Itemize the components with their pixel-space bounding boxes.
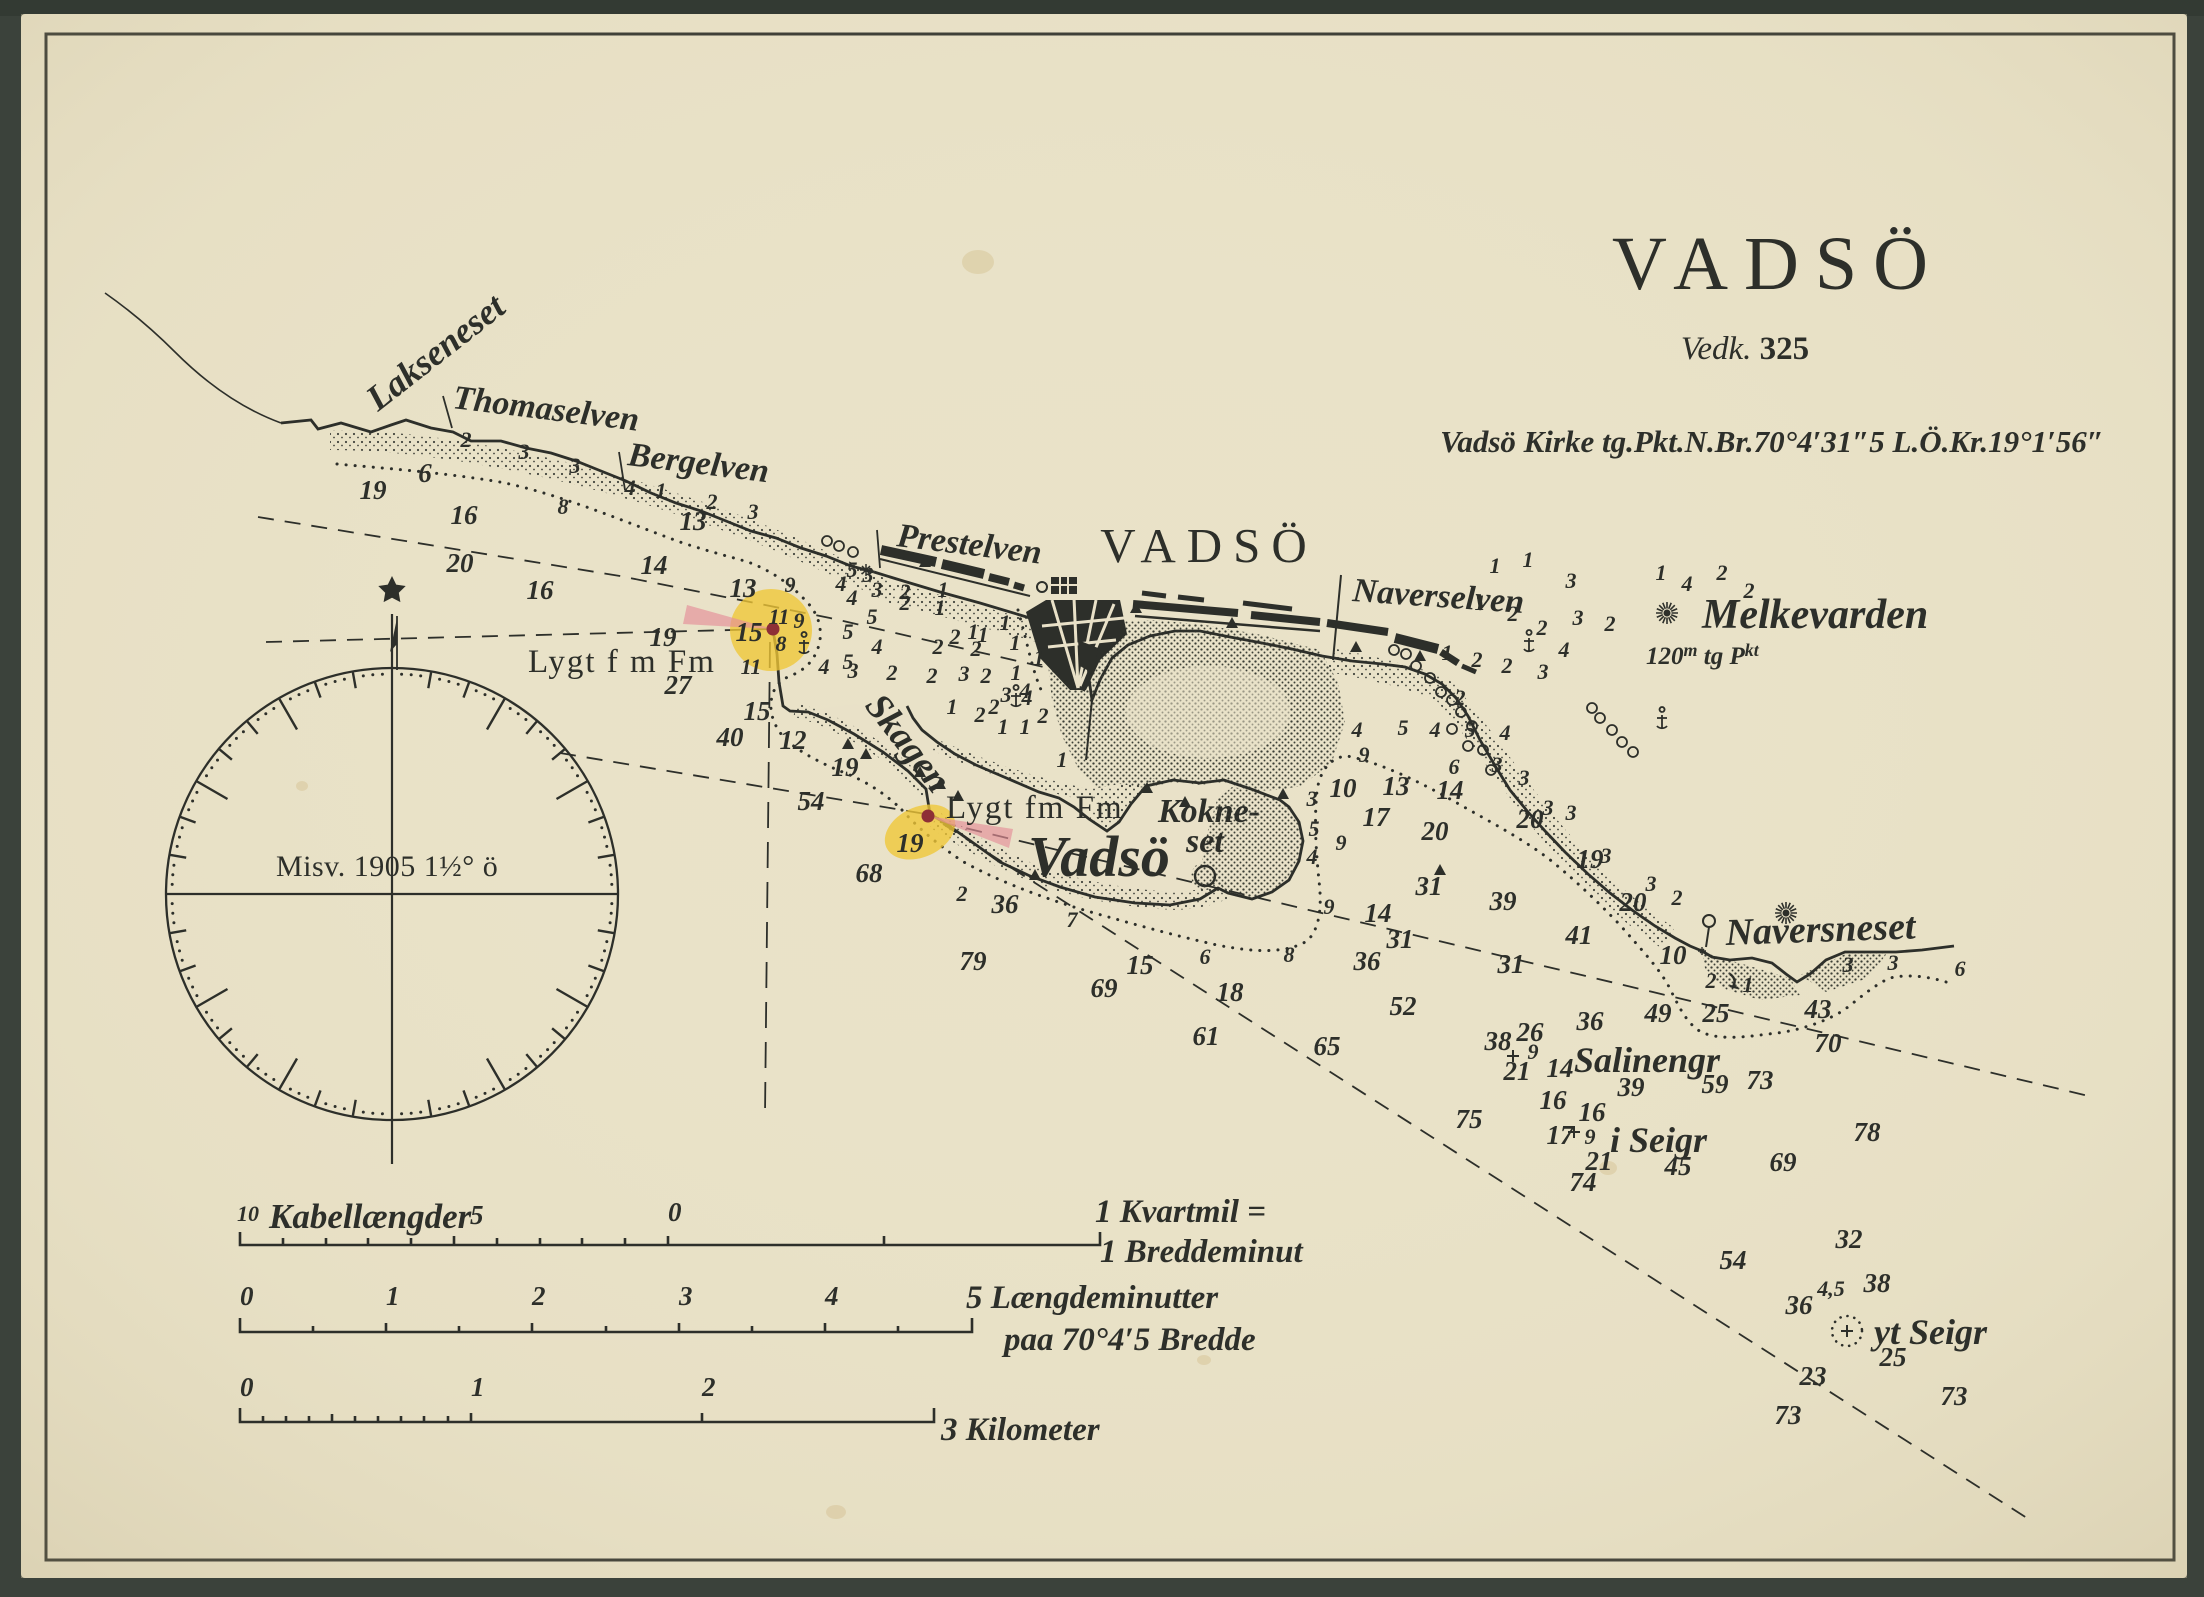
- svg-text:2: 2: [956, 881, 968, 906]
- svg-text:1 Breddeminut: 1 Breddeminut: [1100, 1234, 1303, 1270]
- svg-text:19: 19: [897, 828, 925, 858]
- svg-text:5: 5: [847, 557, 858, 582]
- svg-text:8: 8: [558, 494, 569, 519]
- svg-text:9: 9: [1324, 894, 1335, 919]
- svg-text:36: 36: [1785, 1290, 1814, 1320]
- svg-text:9: 9: [785, 572, 796, 597]
- svg-text:1: 1: [1656, 560, 1667, 585]
- svg-text:20: 20: [1619, 887, 1648, 917]
- svg-text:70: 70: [1815, 1028, 1843, 1058]
- svg-text:10: 10: [1660, 940, 1688, 970]
- svg-text:1: 1: [1034, 645, 1045, 670]
- svg-text:2: 2: [531, 1281, 546, 1311]
- svg-text:4: 4: [818, 654, 830, 679]
- svg-text:5: 5: [1398, 715, 1409, 740]
- svg-text:1: 1: [1010, 630, 1021, 655]
- svg-text:14: 14: [641, 550, 668, 580]
- svg-text:1: 1: [998, 714, 1009, 739]
- svg-text:0: 0: [240, 1281, 254, 1311]
- svg-text:2: 2: [899, 579, 911, 604]
- svg-text:2: 2: [980, 663, 992, 688]
- svg-text:15: 15: [736, 617, 763, 647]
- svg-text:3: 3: [1537, 659, 1549, 684]
- svg-text:13: 13: [680, 506, 707, 536]
- svg-text:4,5: 4,5: [1816, 1276, 1845, 1301]
- svg-text:4: 4: [1681, 571, 1693, 596]
- svg-text:8: 8: [1284, 942, 1295, 967]
- svg-text:36: 36: [1576, 1006, 1605, 1036]
- svg-text:4: 4: [871, 634, 883, 659]
- svg-text:4: 4: [1429, 717, 1441, 742]
- svg-text:3: 3: [1518, 765, 1530, 790]
- svg-text:1: 1: [947, 694, 958, 719]
- svg-text:2: 2: [1454, 685, 1466, 710]
- svg-text:3: 3: [1645, 871, 1657, 896]
- svg-text:4: 4: [846, 585, 858, 610]
- svg-text:Misv. 1905 1½° ö: Misv. 1905 1½° ö: [276, 850, 498, 883]
- svg-text:4: 4: [1499, 720, 1511, 745]
- svg-text:69: 69: [1091, 973, 1119, 1003]
- svg-text:4: 4: [1558, 637, 1570, 662]
- svg-text:2: 2: [1604, 611, 1616, 636]
- svg-text:3: 3: [1306, 786, 1318, 811]
- svg-text:1: 1: [1490, 553, 1501, 578]
- svg-text:14: 14: [1547, 1053, 1574, 1083]
- svg-text:1: 1: [1523, 547, 1534, 572]
- svg-text:52: 52: [1390, 991, 1417, 1021]
- svg-text:2: 2: [1716, 560, 1728, 585]
- svg-text:65: 65: [1314, 1031, 1341, 1061]
- svg-text:73: 73: [1941, 1381, 1968, 1411]
- svg-text:73: 73: [1747, 1065, 1774, 1095]
- svg-text:1: 1: [1057, 747, 1068, 772]
- svg-text:9: 9: [1336, 830, 1347, 855]
- svg-text:73: 73: [1775, 1400, 1802, 1430]
- svg-text:38: 38: [1484, 1026, 1513, 1056]
- svg-text:4: 4: [1351, 717, 1363, 742]
- svg-text:3: 3: [1600, 843, 1612, 868]
- svg-text:68: 68: [856, 858, 884, 888]
- svg-text:5: 5: [867, 604, 878, 629]
- svg-text:i Seigr: i Seigr: [1610, 1120, 1708, 1160]
- svg-text:5: 5: [1465, 717, 1476, 742]
- svg-text:1: 1: [935, 595, 946, 620]
- svg-text:11: 11: [769, 604, 790, 629]
- svg-text:VADSÖ: VADSÖ: [1100, 518, 1317, 573]
- svg-text:15: 15: [744, 696, 771, 726]
- svg-text:2: 2: [926, 663, 938, 688]
- svg-text:1: 1: [656, 478, 667, 503]
- svg-text:4: 4: [835, 571, 847, 596]
- svg-text:13: 13: [730, 573, 757, 603]
- svg-text:3: 3: [862, 562, 874, 587]
- svg-text:3: 3: [569, 453, 581, 478]
- svg-text:39: 39: [1489, 886, 1518, 916]
- svg-text:14: 14: [1437, 775, 1464, 805]
- svg-text:1 Kvartmil =: 1 Kvartmil =: [1095, 1194, 1266, 1230]
- svg-text:3: 3: [678, 1281, 693, 1311]
- svg-text:19: 19: [360, 475, 388, 505]
- svg-text:2: 2: [1536, 615, 1548, 640]
- svg-text:1: 1: [1475, 590, 1486, 615]
- svg-text:VADSÖ: VADSÖ: [1612, 222, 1944, 306]
- svg-text:1: 1: [1442, 640, 1453, 665]
- svg-text:0: 0: [668, 1197, 682, 1227]
- svg-text:10: 10: [237, 1201, 259, 1226]
- svg-text:74: 74: [1570, 1167, 1597, 1197]
- svg-text:59: 59: [1702, 1069, 1730, 1099]
- svg-text:79: 79: [960, 946, 988, 976]
- svg-text:3: 3: [1491, 752, 1503, 777]
- svg-text:2: 2: [932, 634, 944, 659]
- svg-text:32: 32: [1835, 1224, 1863, 1254]
- svg-text:61: 61: [1193, 1021, 1220, 1051]
- svg-text:3: 3: [747, 499, 759, 524]
- svg-text:16: 16: [527, 575, 555, 605]
- svg-text:2: 2: [1471, 647, 1483, 672]
- svg-text:2: 2: [1671, 885, 1683, 910]
- svg-text:54: 54: [798, 786, 825, 816]
- svg-text:31: 31: [1497, 949, 1525, 979]
- svg-text:49: 49: [1644, 998, 1673, 1028]
- svg-text:0: 0: [240, 1372, 254, 1402]
- svg-text:1: 1: [1020, 714, 1031, 739]
- svg-text:20: 20: [1516, 804, 1545, 834]
- svg-text:3: 3: [958, 661, 970, 686]
- svg-text:2: 2: [1507, 601, 1519, 626]
- svg-text:2: 2: [886, 660, 898, 685]
- svg-text:1: 1: [1743, 972, 1754, 997]
- svg-text:2: 2: [970, 636, 982, 661]
- svg-text:Vedk. 325: Vedk. 325: [1681, 331, 1809, 367]
- svg-text:16: 16: [1540, 1085, 1568, 1115]
- svg-text:36: 36: [1353, 946, 1382, 976]
- svg-text:6: 6: [1955, 956, 1966, 981]
- svg-text:3: 3: [1572, 605, 1584, 630]
- svg-text:25: 25: [1879, 1342, 1907, 1372]
- svg-text:3: 3: [1565, 800, 1577, 825]
- svg-text:2: 2: [1501, 653, 1513, 678]
- svg-text:1: 1: [386, 1281, 400, 1311]
- svg-text:20: 20: [446, 548, 475, 578]
- svg-text:4: 4: [1306, 844, 1318, 869]
- svg-text:6: 6: [1200, 944, 1211, 969]
- svg-text:6: 6: [418, 458, 432, 488]
- svg-text:Kabellængder: Kabellængder: [268, 1197, 472, 1236]
- svg-text:25: 25: [1702, 998, 1730, 1028]
- svg-text:2: 2: [460, 427, 472, 452]
- svg-text:69: 69: [1770, 1147, 1798, 1177]
- svg-text:Lygt fm Fm: Lygt fm Fm: [946, 790, 1124, 826]
- svg-text:18: 18: [1217, 977, 1245, 1007]
- svg-text:10: 10: [1330, 773, 1358, 803]
- svg-text:Naversneset: Naversneset: [1724, 905, 1918, 954]
- svg-text:Melkevarden: Melkevarden: [1701, 592, 1928, 638]
- svg-text:12: 12: [780, 725, 807, 755]
- svg-text:21: 21: [1503, 1056, 1531, 1086]
- svg-text:5: 5: [1309, 816, 1320, 841]
- svg-text:3 Kilometer: 3 Kilometer: [940, 1412, 1101, 1448]
- svg-text:6: 6: [1449, 754, 1460, 779]
- svg-text:3: 3: [847, 658, 859, 683]
- svg-text:36: 36: [991, 889, 1020, 919]
- svg-text:3: 3: [1842, 952, 1854, 977]
- svg-text:2: 2: [701, 1372, 716, 1402]
- svg-text:4: 4: [624, 475, 636, 500]
- svg-text:Salinengr: Salinengr: [1574, 1040, 1721, 1080]
- svg-text:2: 2: [706, 489, 718, 514]
- svg-text:3: 3: [1887, 950, 1899, 975]
- svg-text:paa 70°4′5 Bredde: paa 70°4′5 Bredde: [1001, 1322, 1256, 1358]
- svg-text:2: 2: [949, 624, 961, 649]
- svg-text:2: 2: [974, 702, 986, 727]
- svg-text:Vadsö Kirke tg.Pkt.N.Br.70°4′3: Vadsö Kirke tg.Pkt.N.Br.70°4′31″5 L.Ö.Kr…: [1440, 424, 2104, 459]
- svg-text:78: 78: [1854, 1117, 1882, 1147]
- svg-text:8: 8: [776, 631, 787, 656]
- svg-text:120m tg Pkt: 120m tg Pkt: [1646, 640, 1760, 670]
- svg-text:19: 19: [650, 622, 678, 652]
- svg-text:4: 4: [1019, 678, 1031, 703]
- svg-text:5: 5: [843, 619, 854, 644]
- svg-text:7: 7: [1067, 907, 1079, 932]
- svg-text:38: 38: [1863, 1268, 1892, 1298]
- svg-text:54: 54: [1720, 1245, 1747, 1275]
- svg-text:15: 15: [1127, 950, 1154, 980]
- svg-text:40: 40: [716, 722, 745, 752]
- svg-text:23: 23: [1799, 1361, 1827, 1391]
- svg-text:31: 31: [1386, 924, 1414, 954]
- svg-text:43: 43: [1804, 994, 1832, 1024]
- svg-text:2: 2: [1705, 968, 1717, 993]
- svg-text:17: 17: [1363, 802, 1392, 832]
- svg-text:17: 17: [1547, 1120, 1576, 1150]
- svg-text:20: 20: [1421, 816, 1450, 846]
- svg-text:1: 1: [471, 1372, 485, 1402]
- svg-text:set: set: [1185, 823, 1225, 860]
- svg-text:13: 13: [1383, 771, 1410, 801]
- svg-text:Vadsö: Vadsö: [1028, 824, 1170, 889]
- svg-text:39: 39: [1617, 1072, 1646, 1102]
- svg-text:75: 75: [1456, 1104, 1483, 1134]
- svg-text:2: 2: [1037, 703, 1049, 728]
- svg-text:45: 45: [1664, 1151, 1692, 1181]
- svg-text:5 Længdeminutter: 5 Længdeminutter: [966, 1280, 1219, 1316]
- svg-text:31: 31: [1415, 871, 1443, 901]
- svg-text:16: 16: [451, 500, 479, 530]
- svg-text:9: 9: [1359, 742, 1370, 767]
- svg-text:27: 27: [664, 670, 694, 700]
- svg-text:4: 4: [824, 1281, 839, 1311]
- svg-text:19: 19: [832, 752, 860, 782]
- svg-text:2: 2: [1743, 578, 1755, 603]
- svg-text:3: 3: [518, 439, 530, 464]
- svg-text:3: 3: [1000, 682, 1012, 707]
- svg-text:41: 41: [1565, 920, 1593, 950]
- svg-text:3: 3: [1542, 795, 1554, 820]
- svg-text:11: 11: [741, 654, 762, 679]
- svg-text:3: 3: [1565, 568, 1577, 593]
- svg-text:5: 5: [470, 1200, 484, 1230]
- svg-text:16: 16: [1579, 1097, 1607, 1127]
- svg-text:9: 9: [794, 608, 805, 633]
